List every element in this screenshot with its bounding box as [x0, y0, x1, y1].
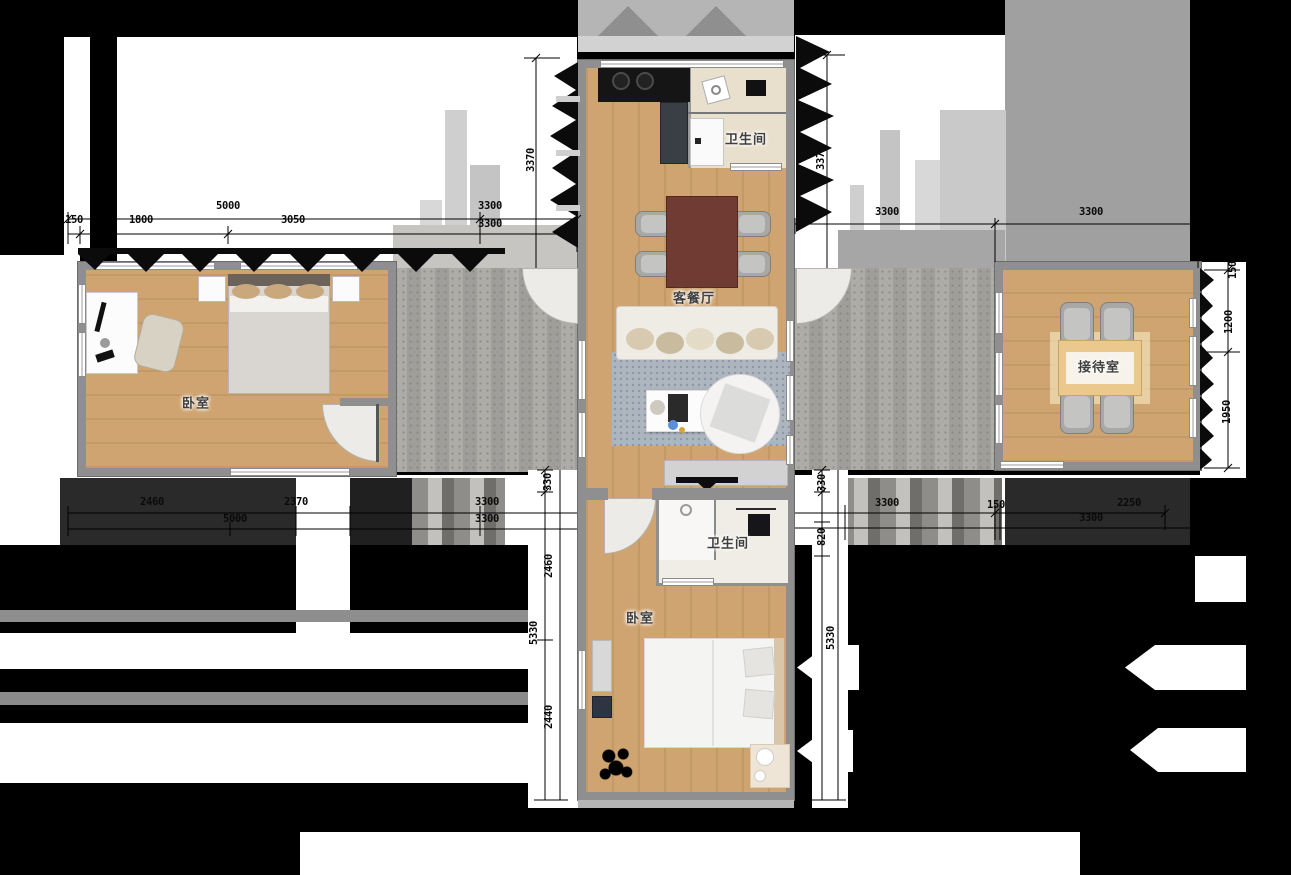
dimension-label: 3300: [875, 206, 899, 218]
dimension-label: 5000: [223, 513, 247, 525]
dimension-label: 3300: [475, 513, 499, 525]
dimension-label: 330: [816, 474, 828, 492]
floor-plan-canvas: 卫生间客餐厅卧室接待室卫生间卧室500033001501800305033003…: [0, 0, 1291, 875]
dimension-label: 3300: [478, 200, 502, 212]
dimension-label: 150: [1227, 261, 1239, 279]
dimension-label: 3300: [478, 218, 502, 230]
dimension-label: 3300: [475, 496, 499, 508]
dimension-label: 3370: [525, 148, 537, 172]
dimension-label: 1200: [1223, 310, 1235, 334]
dimension-label: 5330: [825, 626, 837, 650]
room-label-bathroom-bottom: 卫生间: [707, 533, 749, 552]
hatch-zigzag-right: [796, 36, 834, 232]
dimension-label: 2460: [140, 496, 164, 508]
room-label-bedroom-bottom: 卧室: [626, 608, 654, 627]
dimension-label: 1800: [129, 214, 153, 226]
dimension-label: 330: [542, 473, 554, 491]
dimension-label: 150: [987, 499, 1005, 511]
dimension-label: 3300: [875, 497, 899, 509]
room-label-bathroom-top: 卫生间: [725, 129, 767, 148]
room-label-bedroom-left: 卧室: [182, 393, 210, 412]
dimension-label: 3300: [1079, 512, 1103, 524]
dimension-label: 2460: [543, 554, 555, 578]
dimension-lines-central: [0, 0, 1291, 875]
dimension-label: 2250: [1117, 497, 1141, 509]
room-label-reception: 接待室: [1078, 357, 1120, 376]
shrub-zigzag-top: [78, 248, 505, 272]
dimension-label: 5000: [216, 200, 240, 212]
dimension-label: 3370: [815, 146, 827, 170]
room-label-living-dining: 客餐厅: [673, 288, 715, 307]
dimension-label: 2370: [284, 496, 308, 508]
dimension-label: 3050: [281, 214, 305, 226]
dimension-label: 3300: [1079, 206, 1103, 218]
hatch-zigzag-wing-right: [1200, 268, 1214, 470]
dimension-label: 820: [816, 528, 828, 546]
dimension-label: 2440: [543, 705, 555, 729]
dimension-label: 150: [65, 214, 83, 226]
dimension-label: 5330: [528, 621, 540, 645]
dimension-label: 1950: [1221, 400, 1233, 424]
